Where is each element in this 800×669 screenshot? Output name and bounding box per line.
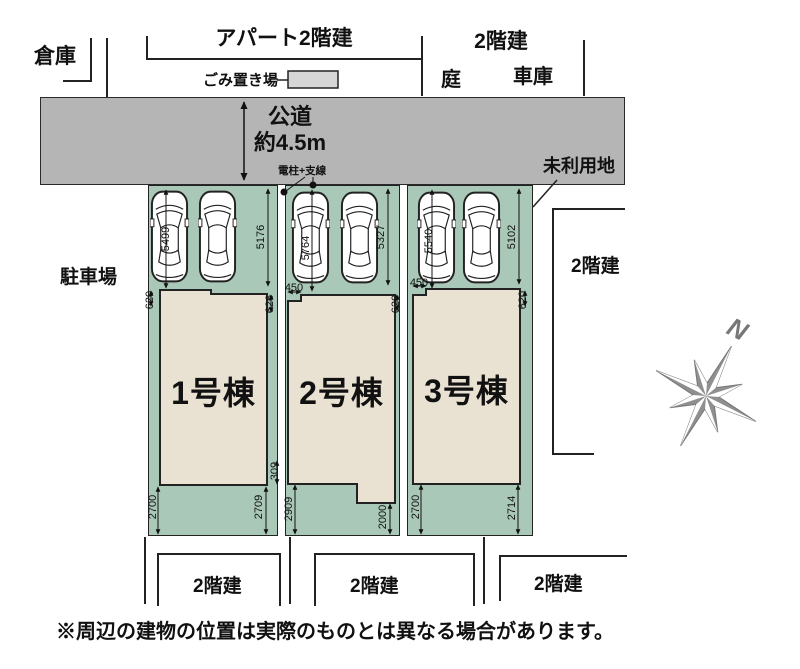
east-building-outline xyxy=(553,209,625,454)
dim-lot2-bottom-left: 2909 xyxy=(282,487,296,531)
label-road-name: 公道 xyxy=(250,104,330,129)
dim-lot3-top-offset: 450 xyxy=(405,276,433,290)
compass-rose-icon xyxy=(631,321,782,472)
label-south-building-2: 2階建 xyxy=(350,576,399,598)
dim-lot2-top-right: 620 xyxy=(389,282,403,326)
label-warehouse: 倉庫 xyxy=(34,45,76,69)
compass-north-label: N xyxy=(722,311,753,347)
label-east-building: 2階建 xyxy=(571,256,620,278)
dim-lot1-side-depth: 5176 xyxy=(254,215,268,259)
dim-lot1-top-right: 626 xyxy=(263,282,277,326)
dim-lot1-mid-right: 309 xyxy=(268,449,282,493)
trash-area-icon xyxy=(277,71,338,88)
dim-lot1-bottom-left: 2700 xyxy=(146,485,160,529)
dim-lot2-parking-depth: 5764 xyxy=(299,226,313,270)
dim-lot3-bottom-right: 2714 xyxy=(505,486,519,530)
label-garden: 庭 xyxy=(441,69,461,92)
dim-lot3-side-depth: 5102 xyxy=(505,215,519,259)
label-north-building: 2階建 xyxy=(468,30,534,54)
dim-lot2-side-depth: 5327 xyxy=(374,215,388,259)
label-lot3-name: 3号棟 xyxy=(413,366,520,412)
label-trash-area: ごみ置き場 xyxy=(203,72,278,89)
dim-lot3-parking-depth: 5540 xyxy=(422,219,436,263)
label-parking-lot: 駐車場 xyxy=(60,267,117,289)
site-plan: 倉庫 アパート2階建 ごみ置き場 2階建 庭 車庫 公道 約4.5m 電柱+支線… xyxy=(0,0,800,669)
label-garage: 車庫 xyxy=(513,66,553,89)
label-apartment: アパート2階建 xyxy=(214,27,354,51)
label-road-width: 約4.5m xyxy=(240,130,340,155)
dim-lot2-bottom-right: 2000 xyxy=(376,495,390,539)
dim-lot1-top-left: 620 xyxy=(143,278,157,322)
dim-lot1-parking-depth: 5499 xyxy=(159,217,173,261)
dim-lot2-top-offset: 450 xyxy=(280,281,308,295)
label-disclaimer: ※周辺の建物の位置は実際のものとは異なる場合があります。 xyxy=(56,615,614,644)
label-unused-land: 未利用地 xyxy=(543,156,615,177)
dim-lot1-bottom-right: 2709 xyxy=(252,485,266,529)
label-lot1-name: 1号棟 xyxy=(160,368,267,414)
label-south-building-1: 2階建 xyxy=(193,576,242,598)
label-utility-pole: 電柱+支線 xyxy=(278,165,326,177)
label-lot2-name: 2号棟 xyxy=(288,368,395,414)
dim-lot3-top-right: 620 xyxy=(516,278,530,322)
dim-lot3-bottom-left: 2700 xyxy=(409,485,423,529)
label-south-building-3: 2階建 xyxy=(534,574,583,596)
